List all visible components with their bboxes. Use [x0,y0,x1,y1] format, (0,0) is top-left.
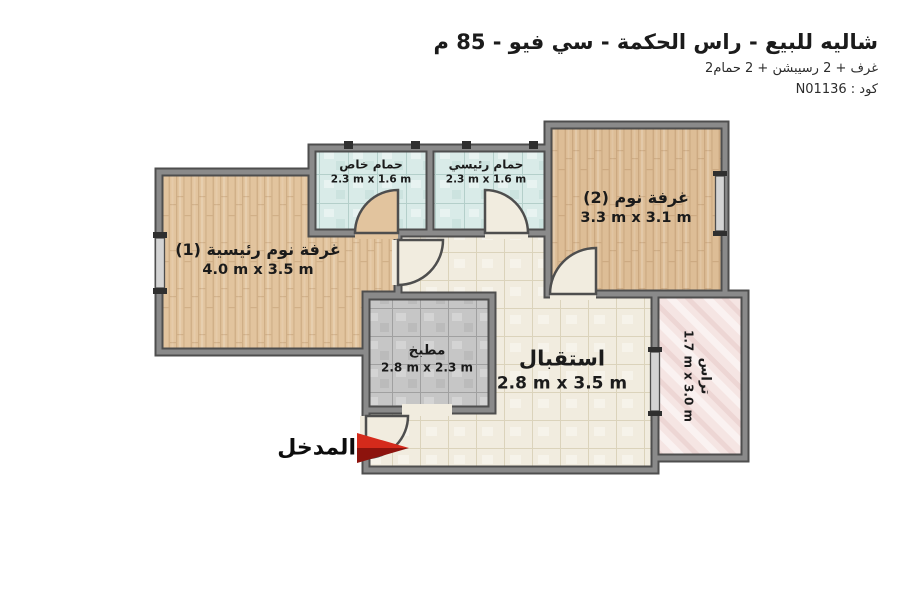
kitchen-floor-texture [366,296,492,410]
vent-tick [529,141,538,149]
door-opening-kitchen [402,404,452,416]
listing-title: شاليه للبيع - راس الحكمة - سي فيو - 85 م [434,30,878,54]
window-cap [713,171,727,176]
floor-plan-page: شاليه للبيع - راس الحكمة - سي فيو - 85 م… [0,0,900,600]
window-cap [648,347,662,352]
window-terrace [651,352,660,411]
window-cap [153,288,167,294]
window-cap [648,411,662,416]
listing-subtitle: 2غرف + 2 رسيبشن + 2 حمام [705,61,878,76]
terrace-floor-texture [655,294,745,458]
vent-tick [344,141,353,149]
floor-plan-drawing [0,0,900,600]
window-cap [153,232,167,238]
window-bedroom-2 [716,176,725,231]
vent-tick [462,141,471,149]
label-entrance: المدخل [277,436,356,461]
window-cap [713,231,727,236]
listing-code: كود : N01136 [796,82,878,97]
window-master-bedroom [156,238,165,288]
vent-tick [411,141,420,149]
